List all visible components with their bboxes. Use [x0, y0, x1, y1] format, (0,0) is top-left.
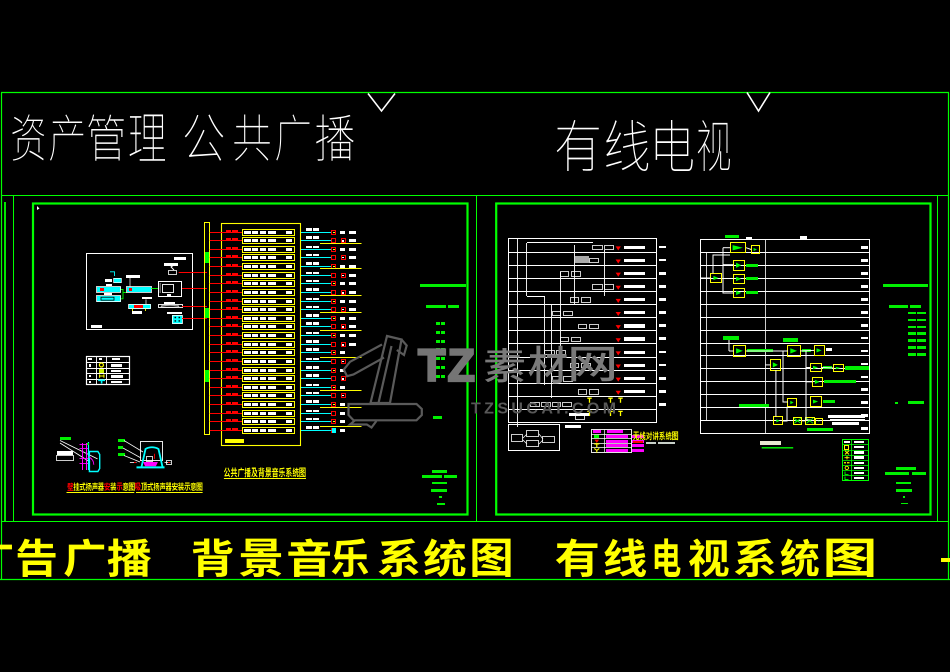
svg-text:TZSUCAI.COM: TZSUCAI.COM: [471, 401, 620, 418]
svg-text:TZ: TZ: [418, 340, 477, 391]
